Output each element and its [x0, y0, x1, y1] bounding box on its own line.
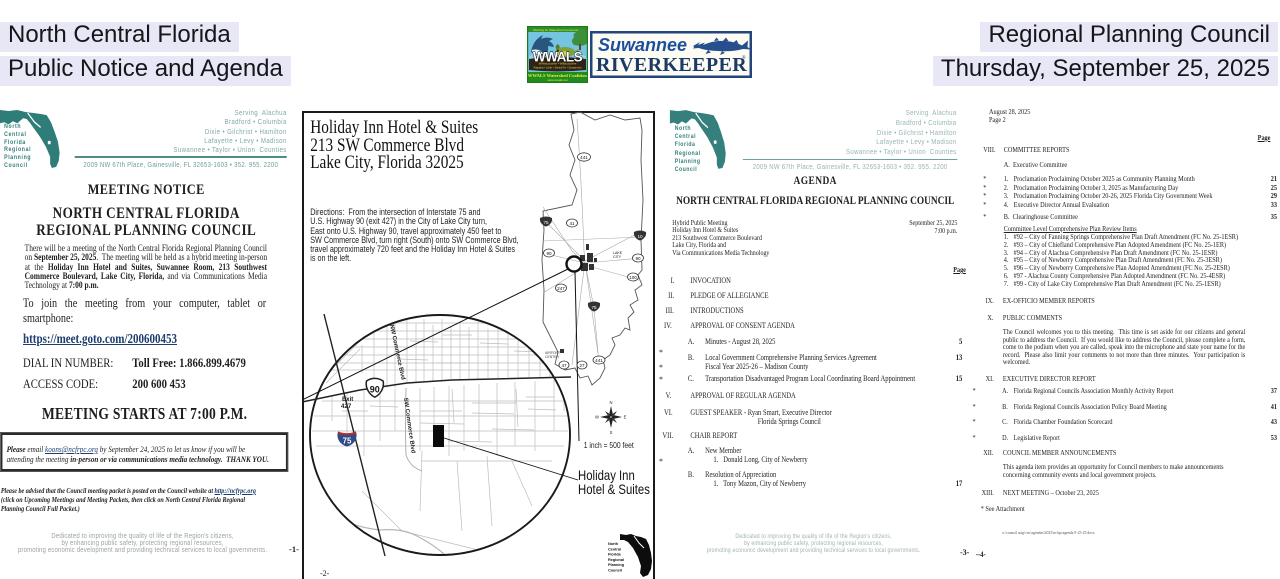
svg-text:Working for Watershed Conserva: Working for Watershed Conservation	[533, 28, 582, 32]
svg-text:www.wwals.net: www.wwals.net	[547, 78, 568, 82]
svg-text:Alapaha • Little • Santa Fe •: Alapaha • Little • Santa Fe • Suwannee	[533, 66, 582, 70]
svg-text:®: ®	[742, 55, 746, 61]
svg-text:WWALS: WWALS	[533, 50, 583, 65]
svg-text:RIVERKEEPER: RIVERKEEPER	[596, 54, 747, 76]
svg-text:Suwannee: Suwannee	[598, 35, 687, 55]
